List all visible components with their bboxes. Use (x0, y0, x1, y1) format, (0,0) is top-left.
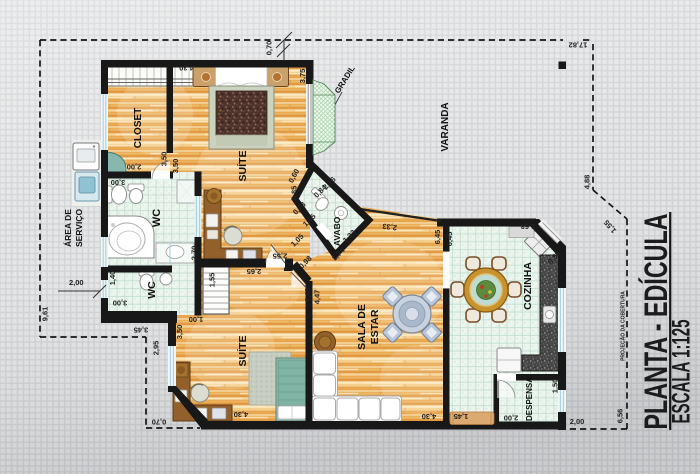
svg-text:1,40: 1,40 (108, 271, 117, 286)
svg-text:SERVIÇO: SERVIÇO (74, 209, 84, 247)
svg-text:2,33: 2,33 (382, 222, 398, 233)
svg-text:WC: WC (146, 281, 158, 299)
svg-text:2,00: 2,00 (570, 417, 585, 426)
svg-text:4,88: 4,88 (583, 175, 592, 190)
svg-text:3,45: 3,45 (134, 326, 149, 335)
svg-text:6,45: 6,45 (445, 232, 454, 247)
svg-text:4,47: 4,47 (313, 290, 322, 305)
svg-text:4,40: 4,40 (303, 288, 312, 303)
svg-text:4,30: 4,30 (179, 64, 194, 73)
svg-text:1,00: 1,00 (189, 315, 204, 324)
svg-text:3,50: 3,50 (160, 152, 169, 167)
svg-text:3,50: 3,50 (175, 325, 184, 340)
svg-text:CLOSET: CLOSET (133, 108, 144, 149)
svg-text:4,30: 4,30 (234, 410, 249, 419)
svg-text:SUÍTE: SUÍTE (236, 336, 249, 367)
svg-text:DESPENSA: DESPENSA (525, 377, 534, 421)
svg-text:COZINHA: COZINHA (522, 262, 534, 310)
svg-text:0,70: 0,70 (152, 418, 167, 427)
svg-text:ESTAR: ESTAR (369, 309, 381, 344)
svg-text:1,50: 1,50 (551, 379, 560, 394)
svg-text:3,50: 3,50 (171, 159, 180, 174)
svg-text:ÁREA DE: ÁREA DE (63, 209, 73, 247)
svg-text:3,00: 3,00 (113, 299, 128, 308)
svg-text:1,55: 1,55 (208, 273, 217, 288)
svg-text:2,68: 2,68 (521, 222, 536, 231)
svg-text:2,55: 2,55 (273, 252, 288, 261)
svg-text:2,00: 2,00 (69, 278, 84, 287)
svg-text:6,45: 6,45 (433, 230, 442, 245)
svg-text:4,30: 4,30 (422, 412, 437, 421)
svg-text:3,75: 3,75 (298, 69, 307, 84)
svg-text:SALA DE: SALA DE (356, 304, 368, 350)
svg-text:17,82: 17,82 (569, 41, 588, 50)
svg-text:PROJEÇÃO DA COBERTURA: PROJEÇÃO DA COBERTURA (620, 291, 627, 361)
svg-text:0,70: 0,70 (265, 41, 274, 56)
svg-text:6,56: 6,56 (616, 409, 625, 424)
svg-text:2,95: 2,95 (152, 341, 161, 356)
svg-text:2,70: 2,70 (190, 246, 199, 261)
svg-text:2,65: 2,65 (247, 267, 262, 276)
svg-text:LAVABO: LAVABO (332, 216, 342, 251)
svg-text:1,45: 1,45 (454, 412, 469, 421)
svg-text:2,00: 2,00 (127, 163, 142, 172)
svg-text:0,85: 0,85 (290, 186, 299, 201)
svg-text:9,61: 9,61 (41, 307, 50, 322)
svg-text:3,00: 3,00 (111, 178, 126, 187)
svg-text:VARANDA: VARANDA (440, 102, 451, 151)
svg-text:ESCALA 1:125: ESCALA 1:125 (668, 319, 696, 423)
svg-text:SUÍTE: SUÍTE (236, 151, 249, 182)
svg-text:WC: WC (151, 209, 163, 227)
svg-text:2,00: 2,00 (504, 414, 519, 423)
